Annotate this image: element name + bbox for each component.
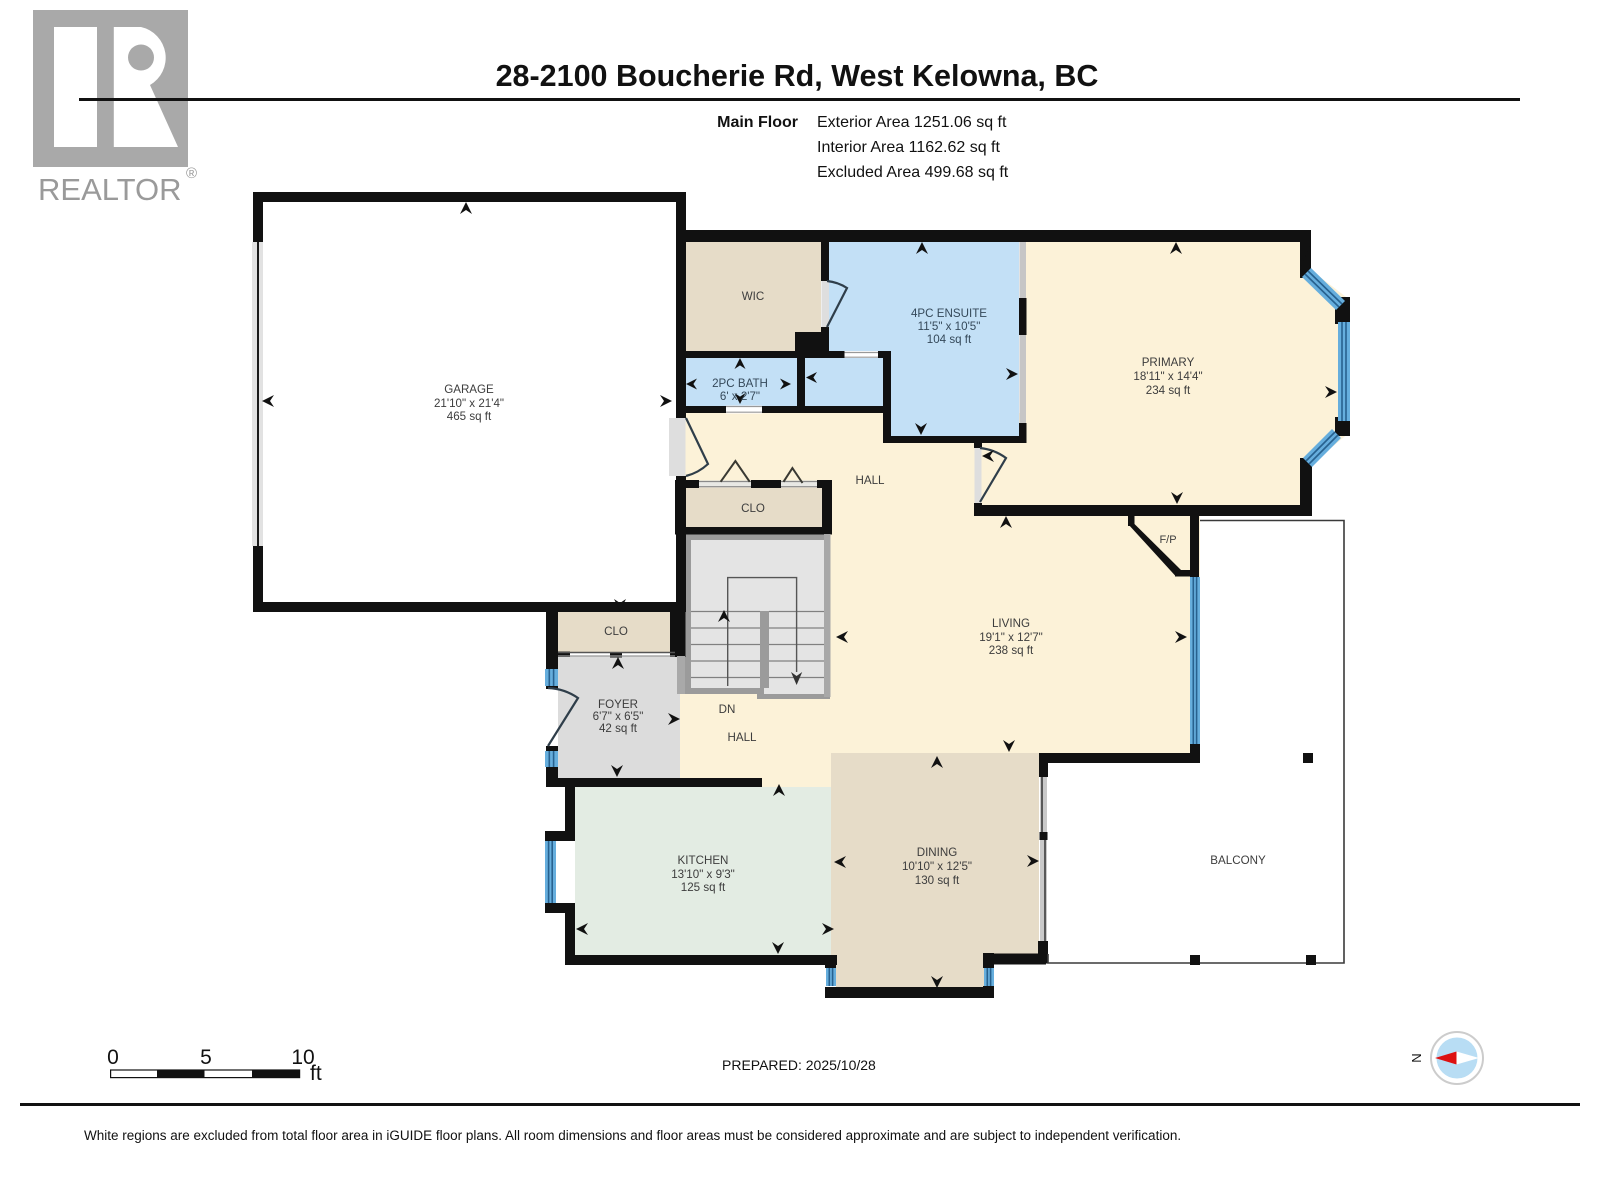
svg-text:6' x 2'7": 6' x 2'7" — [720, 390, 760, 403]
svg-text:2PC BATH: 2PC BATH — [712, 377, 768, 390]
svg-text:0: 0 — [107, 1046, 119, 1069]
svg-text:CLO: CLO — [741, 502, 765, 515]
svg-text:238 sq ft: 238 sq ft — [989, 644, 1034, 657]
svg-text:21'10" x 21'4": 21'10" x 21'4" — [434, 397, 504, 410]
svg-text:CLO: CLO — [604, 625, 628, 638]
svg-text:White regions are excluded fro: White regions are excluded from total fl… — [84, 1128, 1181, 1143]
svg-text:Excluded Area 499.68 sq ft: Excluded Area 499.68 sq ft — [817, 164, 1009, 181]
svg-text:5: 5 — [200, 1046, 212, 1069]
svg-text:104 sq ft: 104 sq ft — [927, 333, 972, 346]
svg-text:BALCONY: BALCONY — [1210, 854, 1266, 867]
svg-text:4PC ENSUITE: 4PC ENSUITE — [911, 307, 987, 320]
svg-text:28-2100 Boucherie Rd, West Kel: 28-2100 Boucherie Rd, West Kelowna, BC — [496, 59, 1099, 93]
svg-text:Interior Area 1162.62 sq ft: Interior Area 1162.62 sq ft — [817, 139, 1000, 156]
svg-text:11'5" x 10'5": 11'5" x 10'5" — [918, 320, 981, 333]
svg-text:DN: DN — [719, 703, 736, 716]
svg-text:42 sq ft: 42 sq ft — [599, 722, 638, 735]
svg-text:F/P: F/P — [1159, 534, 1176, 546]
svg-text:13'10" x 9'3": 13'10" x 9'3" — [671, 868, 735, 881]
svg-text:Exterior Area 1251.06 sq ft: Exterior Area 1251.06 sq ft — [817, 114, 1007, 131]
svg-text:HALL: HALL — [727, 731, 757, 744]
svg-text:HALL: HALL — [855, 474, 885, 487]
svg-text:PRIMARY: PRIMARY — [1142, 356, 1195, 369]
svg-text:125 sq ft: 125 sq ft — [681, 881, 726, 894]
svg-text:465 sq ft: 465 sq ft — [447, 410, 492, 423]
svg-text:N: N — [1409, 1053, 1424, 1062]
svg-text:DINING: DINING — [917, 846, 958, 859]
svg-text:LIVING: LIVING — [992, 617, 1030, 630]
svg-text:KITCHEN: KITCHEN — [678, 854, 729, 867]
svg-text:REALTOR: REALTOR — [38, 172, 182, 207]
svg-text:234 sq ft: 234 sq ft — [1146, 384, 1191, 397]
svg-text:19'1" x 12'7": 19'1" x 12'7" — [979, 631, 1043, 644]
svg-text:Main Floor: Main Floor — [717, 114, 798, 131]
svg-text:GARAGE: GARAGE — [444, 383, 494, 396]
svg-text:PREPARED: 2025/10/28: PREPARED: 2025/10/28 — [722, 1057, 876, 1073]
svg-text:ft: ft — [310, 1062, 322, 1085]
svg-text:10'10" x 12'5": 10'10" x 12'5" — [902, 860, 972, 873]
svg-text:18'11" x 14'4": 18'11" x 14'4" — [1133, 370, 1202, 383]
svg-text:®: ® — [186, 165, 197, 182]
svg-text:WIC: WIC — [742, 290, 765, 303]
svg-text:130 sq ft: 130 sq ft — [915, 874, 960, 887]
